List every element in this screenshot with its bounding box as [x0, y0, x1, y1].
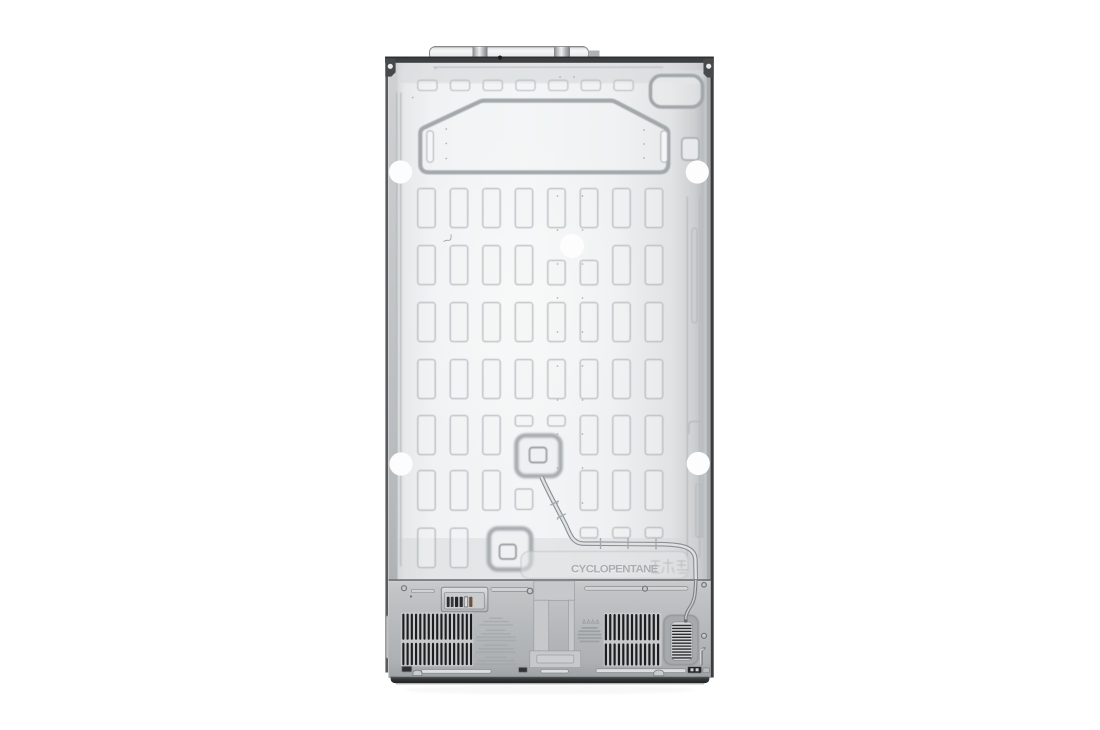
svg-text:CYCLOPENTANE: CYCLOPENTANE — [571, 563, 659, 575]
